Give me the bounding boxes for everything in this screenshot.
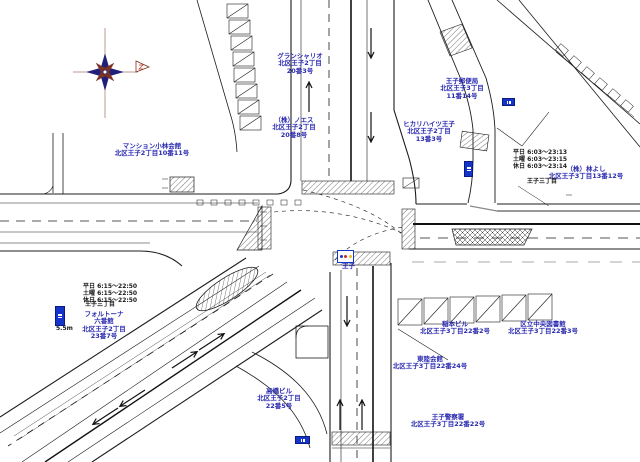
median-island [452, 229, 532, 245]
road-horizontal-left [0, 194, 258, 266]
cad-road-map: グランシャリオ北区王子2丁目20番3号（株）ノエス北区王子2丁目20番8号マンシ… [0, 0, 640, 462]
pedestrian-island [191, 260, 263, 318]
road-horizontal-right [409, 186, 640, 262]
sidewalk-planters [197, 200, 301, 205]
corner-island-west [237, 206, 262, 250]
turn-guide-lines [274, 190, 404, 260]
road-diagonal-southwest [0, 258, 327, 462]
crosswalk-northeast-upper [440, 24, 472, 56]
building-row-southeast [398, 294, 552, 360]
lane-arrows-top [306, 28, 374, 142]
compass-rose-icon [73, 28, 138, 118]
building-column-top [197, 0, 261, 152]
street-topleft [43, 133, 63, 194]
north-pennant-icon [136, 61, 149, 72]
road-network [0, 0, 640, 462]
crosswalk-northeast-lower [460, 131, 489, 151]
bus-bay-row [556, 44, 634, 113]
hatched-structure-left [170, 177, 194, 192]
building-west-of-bottom-road [296, 326, 328, 358]
road-vertical-top [256, 0, 419, 204]
